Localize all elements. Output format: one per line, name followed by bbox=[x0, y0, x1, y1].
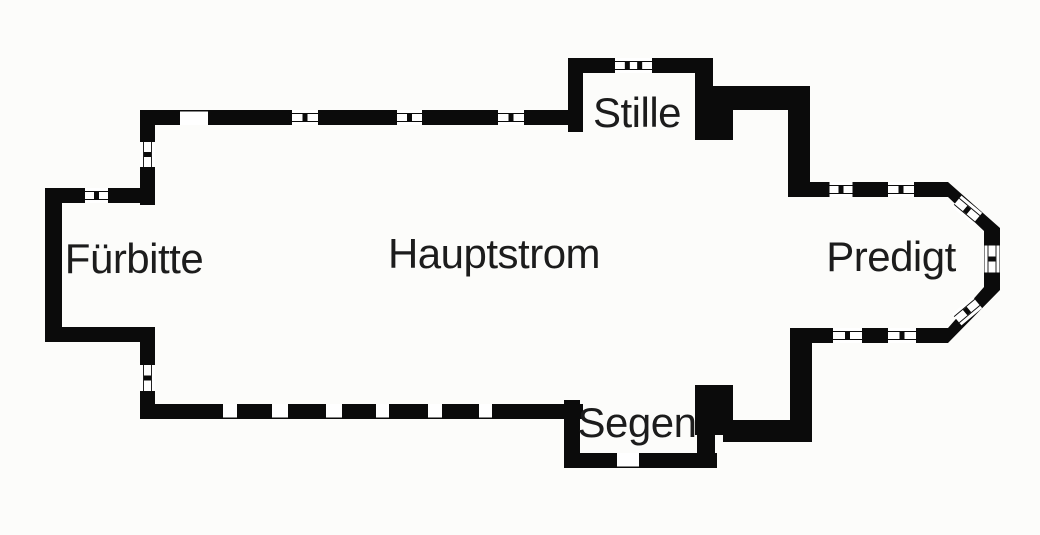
window-symbol-west-wall-window-upper bbox=[140, 142, 155, 167]
door-opening-nave-north-door bbox=[180, 110, 208, 125]
wall-segment-chancel-south-wall bbox=[790, 328, 948, 343]
door-opening-nave-south-gap-5 bbox=[428, 404, 442, 419]
door-opening-nave-south-gap-4 bbox=[376, 404, 389, 419]
window-symbol-north-porch-window bbox=[615, 58, 652, 73]
window-symbol-chancel-south-window-2 bbox=[888, 328, 916, 343]
window-symbol-west-wall-window-lower bbox=[140, 365, 155, 391]
window-symbol-nave-north-window-2 bbox=[397, 110, 422, 125]
window-symbol-annex-north-window bbox=[85, 188, 108, 203]
wall-segment-south-porch-bottom-wall bbox=[564, 453, 717, 468]
window-symbol-nave-north-window-3 bbox=[498, 110, 524, 125]
wall-segment-north-porch-left-wall bbox=[568, 58, 583, 132]
door-opening-south-porch-door bbox=[617, 453, 639, 468]
door-opening-nave-south-gap-2 bbox=[272, 404, 288, 419]
window-symbol-nave-north-window-1 bbox=[292, 110, 318, 125]
room-label-fuerbitte: Fürbitte bbox=[65, 238, 203, 280]
room-label-predigt: Predigt bbox=[826, 236, 956, 278]
window-symbol-chancel-south-window-1 bbox=[833, 328, 862, 343]
wall-segment-annex-south-wall bbox=[45, 327, 155, 342]
wall-segment-nave-south-wall bbox=[140, 404, 583, 419]
window-symbol-chancel-north-window-2 bbox=[888, 182, 914, 197]
room-label-stille: Stille bbox=[593, 92, 681, 134]
floorplan-canvas: Fürbitte Hauptstrom Stille Segen Predigt bbox=[0, 0, 1040, 535]
wall-segment-annex-west-wall bbox=[45, 188, 62, 342]
window-symbol-apse-east-window bbox=[985, 246, 1000, 273]
door-opening-nave-south-gap-6 bbox=[479, 404, 492, 419]
door-opening-nave-south-gap-1 bbox=[223, 404, 237, 419]
window-symbol-chancel-north-window-1 bbox=[830, 182, 853, 197]
wall-segment-north-shoulder-wall bbox=[788, 86, 810, 192]
room-label-segen: Segen bbox=[578, 402, 697, 444]
wall-segment-south-step-wall bbox=[723, 420, 812, 442]
door-opening-nave-south-gap-3 bbox=[326, 404, 342, 419]
room-label-hauptstrom: Hauptstrom bbox=[388, 233, 600, 275]
wall-segment-chancel-north-wall bbox=[788, 182, 948, 197]
